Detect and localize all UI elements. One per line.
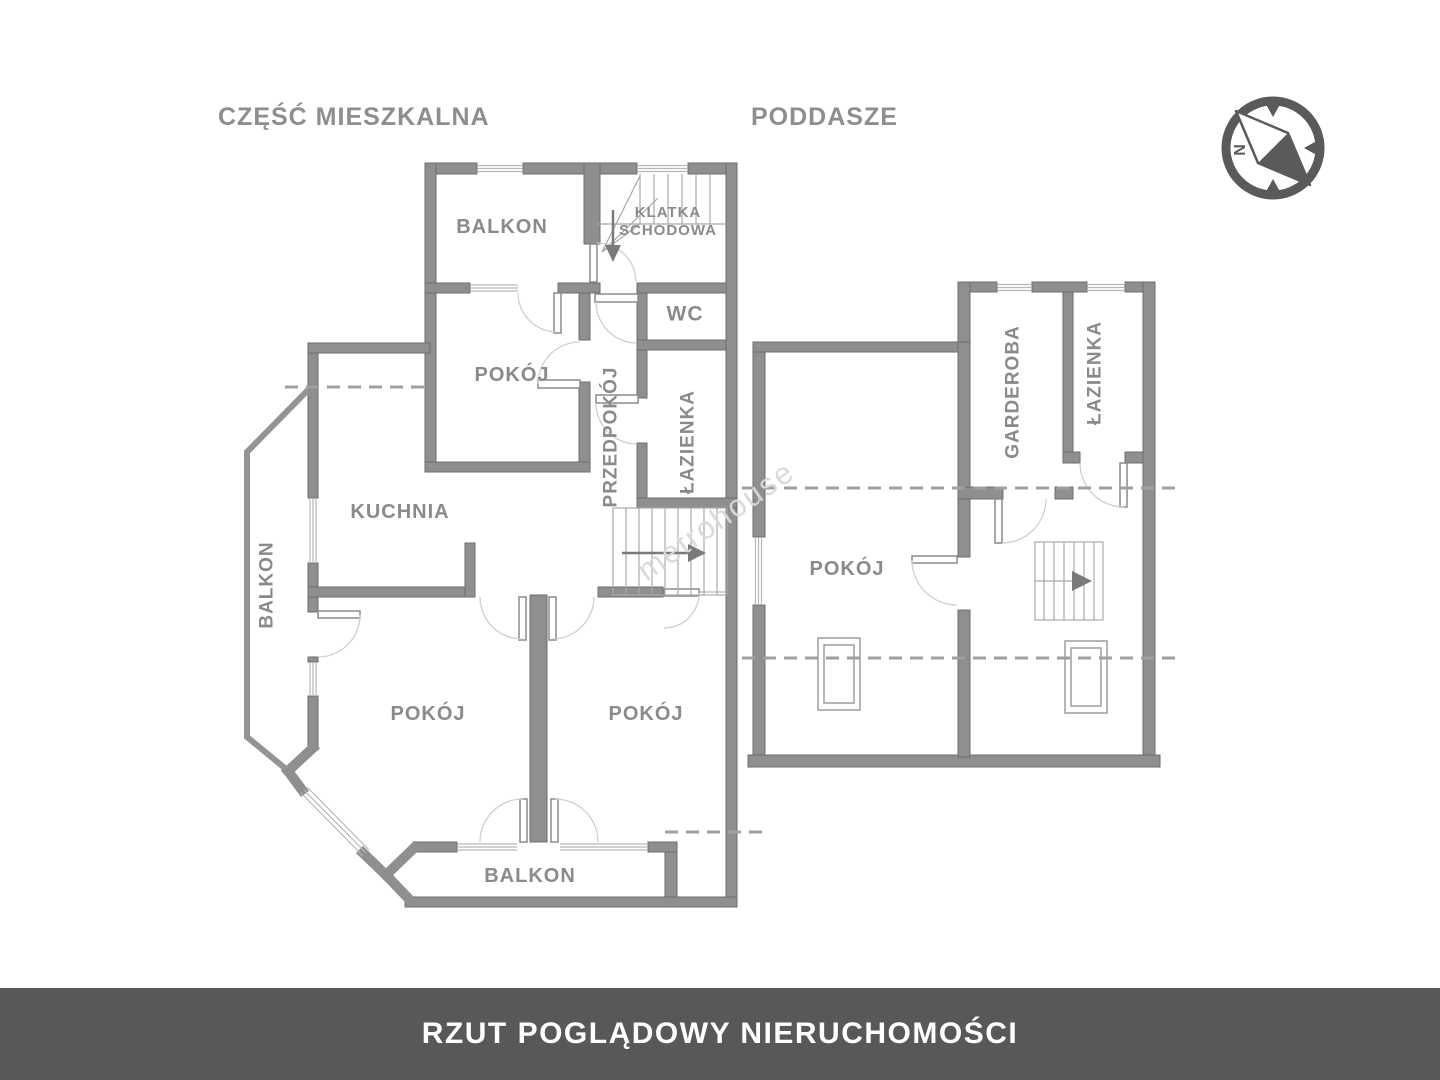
room-label-przedpokoj: PRZEDPOKÓJ xyxy=(601,367,624,508)
room-label-balkon-left: BALKON xyxy=(257,541,280,628)
room-label-balkon-top: BALKON xyxy=(456,215,548,239)
room-label-pokoj-bl: POKÓJ xyxy=(390,702,465,726)
doors-right-plan xyxy=(912,463,1127,563)
floor-plan-drawing: N xyxy=(0,0,1440,988)
footer-bar: RZUT POGLĄDOWY NIERUCHOMOŚCI xyxy=(0,988,1440,1080)
compass-north-label: N xyxy=(1232,144,1249,156)
room-label-lazienka-attic: ŁAZIENKA xyxy=(1085,321,1108,425)
room-label-lazienka: ŁAZIENKA xyxy=(678,390,701,494)
room-label-balkon-bottom: BALKON xyxy=(484,864,576,888)
staircase-attic xyxy=(1035,542,1103,620)
door-arcs-right-plan xyxy=(912,463,1124,605)
attic-stairs-arrow xyxy=(1072,571,1092,591)
room-label-klatka: KLATKA SCHODOWA xyxy=(619,204,717,240)
room-label-wc: WC xyxy=(667,301,704,326)
room-label-pokoj-attic: POKÓJ xyxy=(809,557,884,581)
footer-title: RZUT POGLĄDOWY NIERUCHOMOŚCI xyxy=(422,1017,1018,1051)
room-label-garderoba: GARDEROBA xyxy=(1003,325,1026,459)
section-title-attic: PODDASZE xyxy=(751,103,898,132)
room-label-pokoj-br: POKÓJ xyxy=(608,702,683,726)
floor-plan-page: N CZĘŚĆ MIESZKALNA PODDASZE BALKON KLATK… xyxy=(0,0,1440,1080)
room-label-kuchnia: KUCHNIA xyxy=(350,500,449,524)
section-title-living: CZĘŚĆ MIESZKALNA xyxy=(218,103,490,132)
compass-icon: N xyxy=(1226,99,1322,197)
room-label-pokoj-top: POKÓJ xyxy=(474,363,549,387)
